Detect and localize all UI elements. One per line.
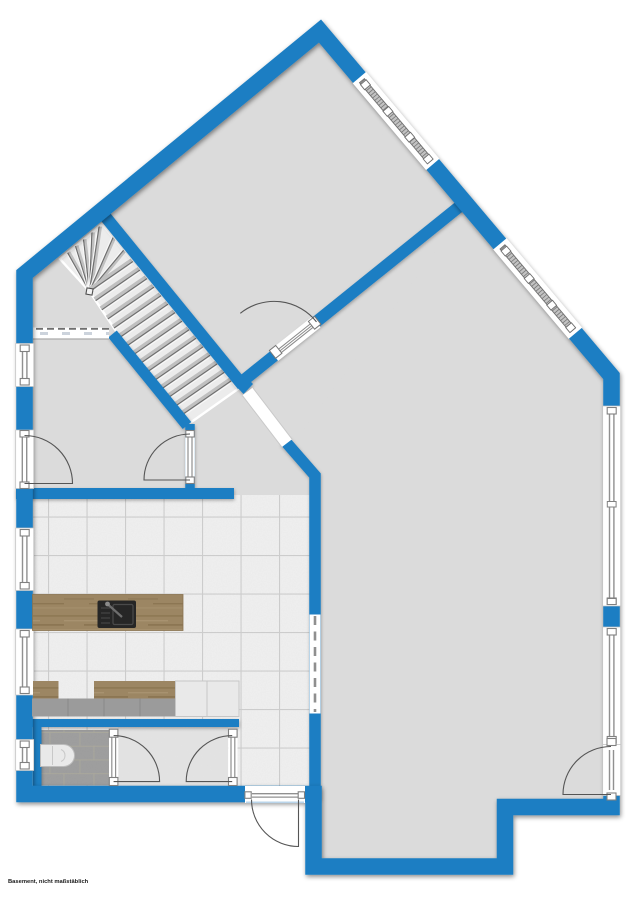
- svg-text:Basement, nicht maßstäblich: Basement, nicht maßstäblich: [8, 879, 89, 885]
